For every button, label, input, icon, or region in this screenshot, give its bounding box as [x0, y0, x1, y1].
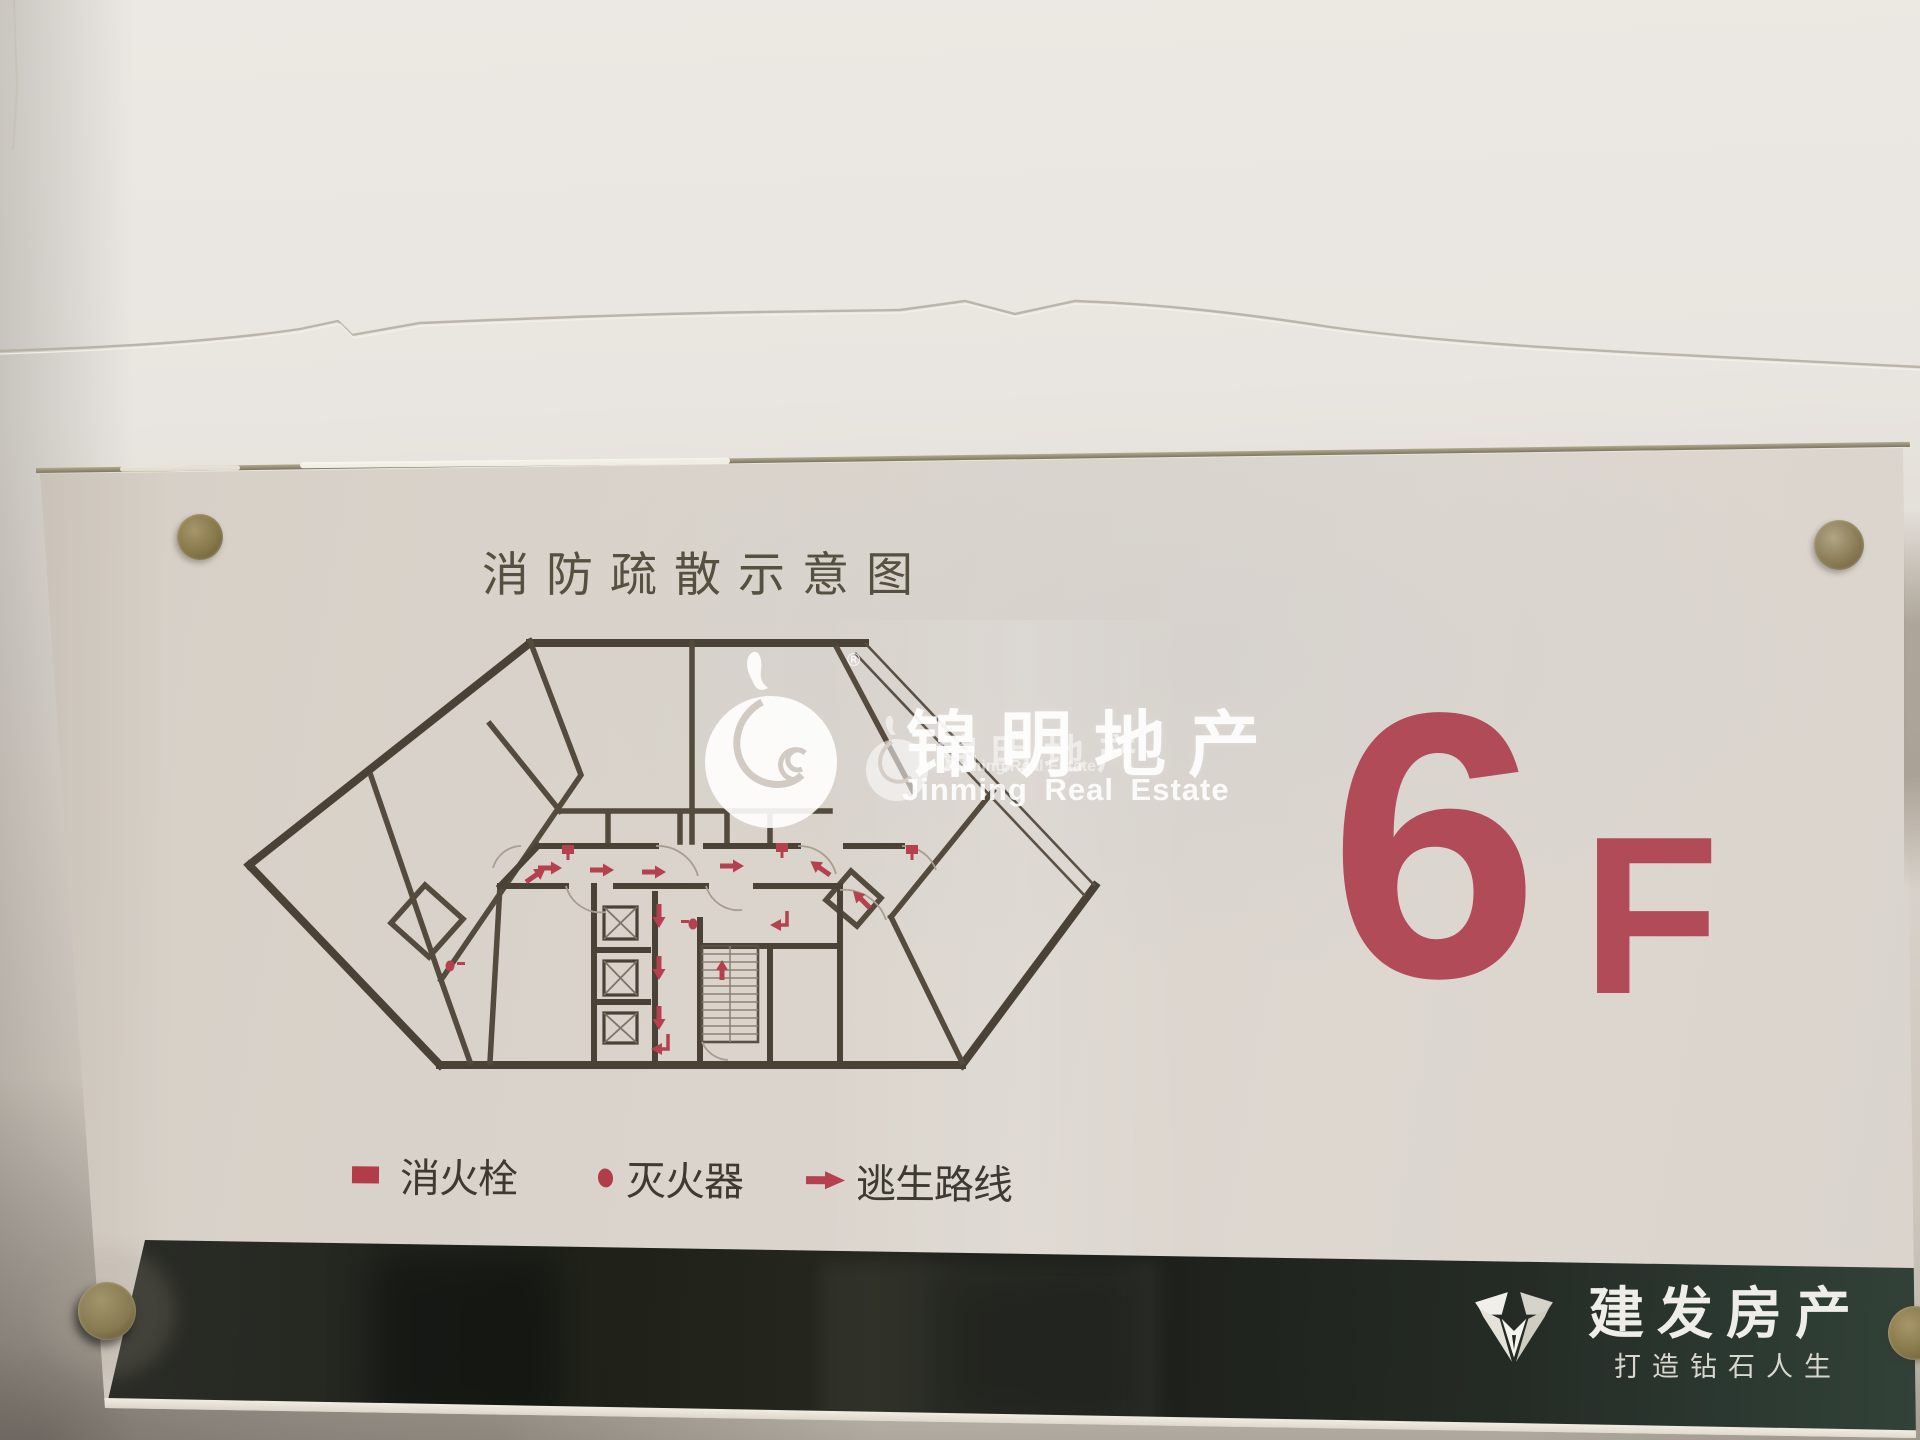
- hydrant-square-icon: [352, 1166, 379, 1183]
- route-arrow-icon: [806, 1170, 845, 1190]
- mounting-screw-bottom-left: [78, 1282, 136, 1340]
- floor-suffix: F: [1582, 803, 1719, 1028]
- legend-label: 消火栓: [400, 1146, 518, 1205]
- band-reflection-highlight: [820, 1262, 1160, 1432]
- sign-title: 消防疏散示意图: [482, 536, 930, 605]
- mounting-screw-top-left: [177, 514, 223, 560]
- legend-item-extinguisher: 灭火器: [598, 1154, 743, 1201]
- photo-of-evacuation-sign: ® 锦明地产 Jinming Real Estate 锦明地产 Jinming …: [0, 0, 1920, 1440]
- elevator-icons: [604, 907, 637, 1043]
- extinguisher-dot-icon: [597, 1167, 614, 1188]
- legend-item-hydrant: 消火栓: [352, 1151, 517, 1198]
- brand-name: 建发房产: [1588, 1286, 1864, 1342]
- floor-number: 6: [1329, 657, 1539, 1035]
- legend-item-route: 逃生路线: [806, 1157, 1012, 1205]
- watermark-registered-mark: ®: [847, 650, 860, 671]
- mounting-screw-top-right: [1814, 520, 1864, 570]
- plan-interior-walls: [371, 641, 993, 1062]
- developer-brand: 建发房产 打造钻石人生: [1462, 1286, 1864, 1381]
- legend-label: 灭火器: [626, 1149, 744, 1208]
- plate-edge-shadow: [1904, 510, 1920, 890]
- watermark-logo-icon: [700, 636, 870, 836]
- brand-text: 建发房产 打造钻石人生: [1588, 1286, 1864, 1381]
- watermark-en-text: Jinming Real Estate: [902, 772, 1230, 808]
- brand-slogan: 打造钻石人生: [1614, 1354, 1864, 1381]
- legend-label: 逃生路线: [856, 1152, 1013, 1211]
- stairs-icon: [702, 946, 758, 1060]
- brand-diamond-icon: [1462, 1286, 1566, 1372]
